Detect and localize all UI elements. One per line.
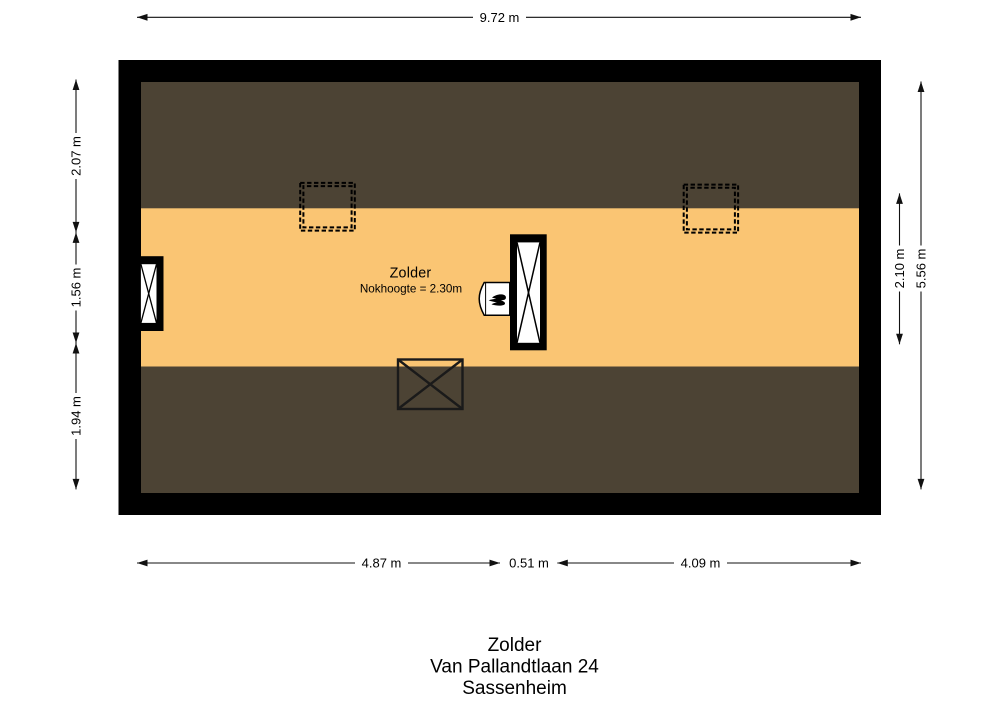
svg-text:Zolder: Zolder [488, 635, 543, 656]
svg-text:Sassenheim: Sassenheim [462, 678, 567, 699]
svg-text:0.51 m: 0.51 m [509, 556, 549, 571]
svg-text:Zolder: Zolder [390, 265, 432, 281]
svg-text:9.72 m: 9.72 m [480, 10, 520, 25]
svg-text:Nokhoogte = 2.30m: Nokhoogte = 2.30m [360, 282, 462, 295]
svg-text:4.09 m: 4.09 m [681, 556, 721, 571]
svg-text:4.87 m: 4.87 m [362, 556, 402, 571]
svg-text:1.56 m: 1.56 m [68, 268, 83, 308]
svg-text:2.07 m: 2.07 m [68, 136, 83, 176]
svg-text:5.56 m: 5.56 m [913, 249, 928, 289]
svg-text:1.94 m: 1.94 m [68, 396, 83, 436]
svg-text:Van Pallandtlaan 24: Van Pallandtlaan 24 [430, 657, 599, 678]
svg-text:2.10 m: 2.10 m [892, 249, 907, 289]
